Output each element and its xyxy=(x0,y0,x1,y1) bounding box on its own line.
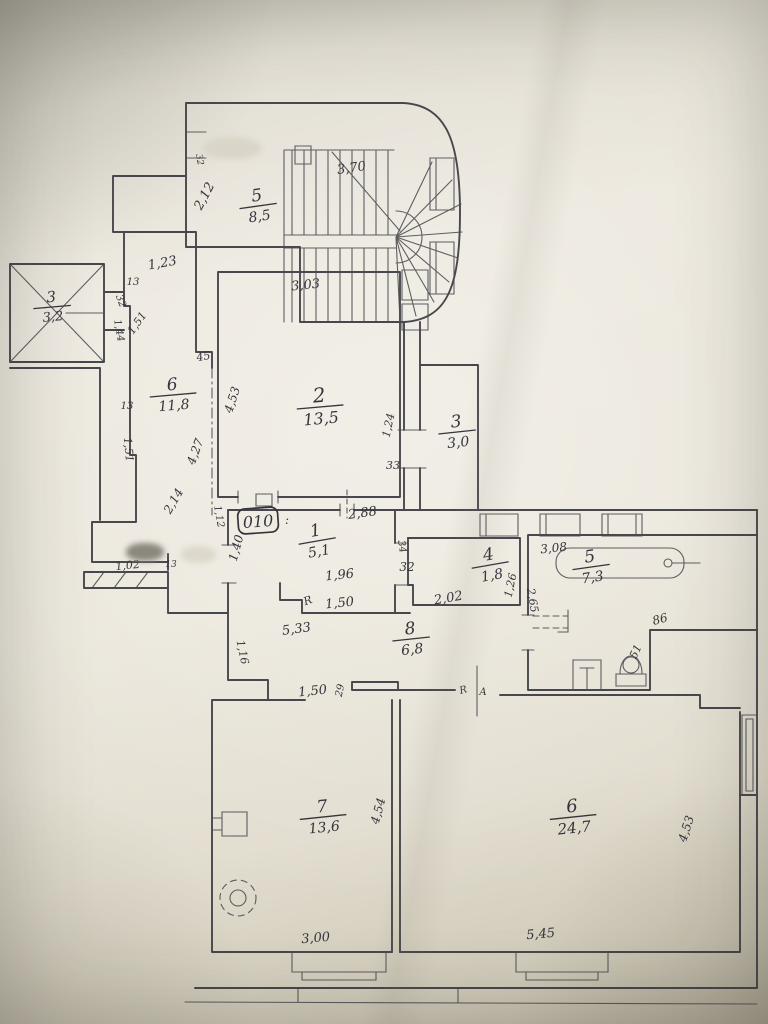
dimension-label: 1,51 xyxy=(125,309,150,337)
room-area: 13,6 xyxy=(308,818,341,837)
bathtub-drain xyxy=(664,559,672,567)
room-area: 24,7 xyxy=(556,817,593,839)
room7-room6-divider xyxy=(392,700,400,952)
exterior-ground-lines xyxy=(185,988,757,1004)
dimension-label: 34 xyxy=(395,539,408,553)
room-label-corridor-8: 86,8 xyxy=(390,617,431,660)
room7-walls xyxy=(212,700,392,952)
room-number: 3 xyxy=(450,412,463,433)
dimension-label: 32 xyxy=(193,153,205,166)
room-number: 6 xyxy=(166,375,179,396)
dimension-label: 1,40 xyxy=(226,533,247,563)
dimension-label: 3,03 xyxy=(290,277,320,295)
entry-wall xyxy=(84,572,228,613)
stair-bay-window xyxy=(430,158,454,294)
dimension-label: 1,16 xyxy=(234,639,252,666)
room6-side-window xyxy=(742,715,757,795)
dimension-label: 4,54 xyxy=(368,796,389,826)
room-area: 13,5 xyxy=(303,407,340,429)
sink xyxy=(573,660,601,690)
dimension-label: 3,00 xyxy=(301,930,331,947)
room7-window xyxy=(292,952,386,980)
stair-outer-wall xyxy=(186,103,460,322)
room6-window xyxy=(516,952,608,980)
dimension-label: 1,50 xyxy=(324,595,354,613)
bathroom-walls xyxy=(528,535,757,690)
dimension-label: 1,23 xyxy=(147,254,178,274)
room-area: 3,2 xyxy=(42,309,64,326)
room-number: 3 xyxy=(46,288,57,307)
dimension-label: 2,12 xyxy=(191,180,218,213)
room-area: 11,8 xyxy=(158,397,191,416)
room-label-room-2: 213,5 xyxy=(295,381,346,430)
dimension-label: 1,26 xyxy=(502,572,520,599)
dimension-label: 3,70 xyxy=(336,159,367,178)
vent-boxes xyxy=(480,514,642,536)
dimension-label: 13 xyxy=(127,277,140,288)
room-number: 6 xyxy=(565,796,579,818)
dimension-label: 1,12 xyxy=(211,505,226,529)
dimension-labels: 3,70322,121,2313321,511,4445131,514,274,… xyxy=(111,153,697,947)
bathroom-door-bracket xyxy=(558,610,568,632)
room-number: 8 xyxy=(404,619,417,640)
room-label-corridor-6: 611,8 xyxy=(148,373,198,416)
dimension-label: 33 xyxy=(386,459,400,472)
dimension-label: 4,27 xyxy=(184,436,207,467)
dimension-label: 13 xyxy=(165,560,177,570)
room-area: 3,0 xyxy=(446,434,470,452)
dimension-label: A xyxy=(478,687,486,698)
door-ticks xyxy=(222,430,534,650)
stove-inner xyxy=(230,890,246,906)
hall1-vent-box xyxy=(256,494,272,506)
lower-left-room-walls xyxy=(10,368,100,520)
dimension-label: 1,51 xyxy=(121,437,136,463)
room-number: 5 xyxy=(250,185,264,206)
dimension-label: 51 xyxy=(627,642,645,660)
room-area: 8,5 xyxy=(248,207,272,226)
room7-radiator xyxy=(212,812,247,836)
room-area: 1,8 xyxy=(480,566,505,586)
room-number: 5 xyxy=(583,546,597,567)
dimension-label: 1,44 xyxy=(111,319,126,343)
dimension-label: 2,14 xyxy=(160,486,186,517)
dimension-label: R xyxy=(457,684,469,697)
bathtub xyxy=(556,548,684,578)
photographed-floor-plan: { "plan": { "description": "hand-drawn a… xyxy=(0,0,768,1024)
room-number: 4 xyxy=(480,544,495,566)
bathroom-door-dashed xyxy=(533,616,568,628)
room-area: 5,1 xyxy=(307,542,332,562)
floor-plan-svg: 010 : 58,533,2611,8213,533,015,141,857,3… xyxy=(0,0,768,1024)
stair-landing xyxy=(284,235,396,248)
room-number: 7 xyxy=(316,797,329,818)
room-area: 6,8 xyxy=(400,641,424,659)
dimension-label: 2,65 xyxy=(524,586,541,613)
apartment-number: 010 xyxy=(242,511,274,532)
room-area: 7,3 xyxy=(581,568,605,587)
dimension-label: 86 xyxy=(651,610,670,628)
stove-outer xyxy=(220,880,256,916)
dimension-label: 1,96 xyxy=(324,567,354,585)
wall-piece xyxy=(352,682,398,690)
room-label-staircase: 58,5 xyxy=(237,184,280,228)
room2-room3-wall xyxy=(404,322,420,510)
room2-walls xyxy=(218,272,400,497)
entry-wall-hatch xyxy=(92,572,148,588)
dimension-label: 2,88 xyxy=(346,504,378,523)
dimension-label: 13 xyxy=(121,401,134,412)
dimension-label: 4,53 xyxy=(221,385,243,416)
dimension-label: 32 xyxy=(399,560,414,574)
stair-top-box xyxy=(295,146,311,164)
room-number: 2 xyxy=(311,383,327,408)
walls xyxy=(10,103,757,988)
room-label-room-3: 33,0 xyxy=(436,410,477,453)
dimension-label: 4,53 xyxy=(675,814,697,845)
apartment-number-suffix: : xyxy=(285,513,289,527)
dimension-label: 5,45 xyxy=(526,926,556,943)
dimension-label: 1,50 xyxy=(297,683,327,701)
room-label-hall-1: 15,1 xyxy=(295,518,339,563)
dimension-label: 5,33 xyxy=(281,620,312,639)
room-number: 1 xyxy=(308,520,322,542)
dimension-label: 3,08 xyxy=(540,540,568,557)
room-label-room-7: 713,6 xyxy=(298,795,349,839)
dimension-label: 29 xyxy=(334,682,348,698)
room-label-bathroom-5: 57,3 xyxy=(570,545,613,589)
room-label-room-6: 624,7 xyxy=(548,794,599,840)
room-labels: 58,533,2611,8213,533,015,141,857,386,871… xyxy=(32,184,613,840)
dimension-label: 1,02 xyxy=(115,558,141,573)
dimension-label: 1,24 xyxy=(380,412,398,439)
dimension-label: 45 xyxy=(194,349,211,364)
